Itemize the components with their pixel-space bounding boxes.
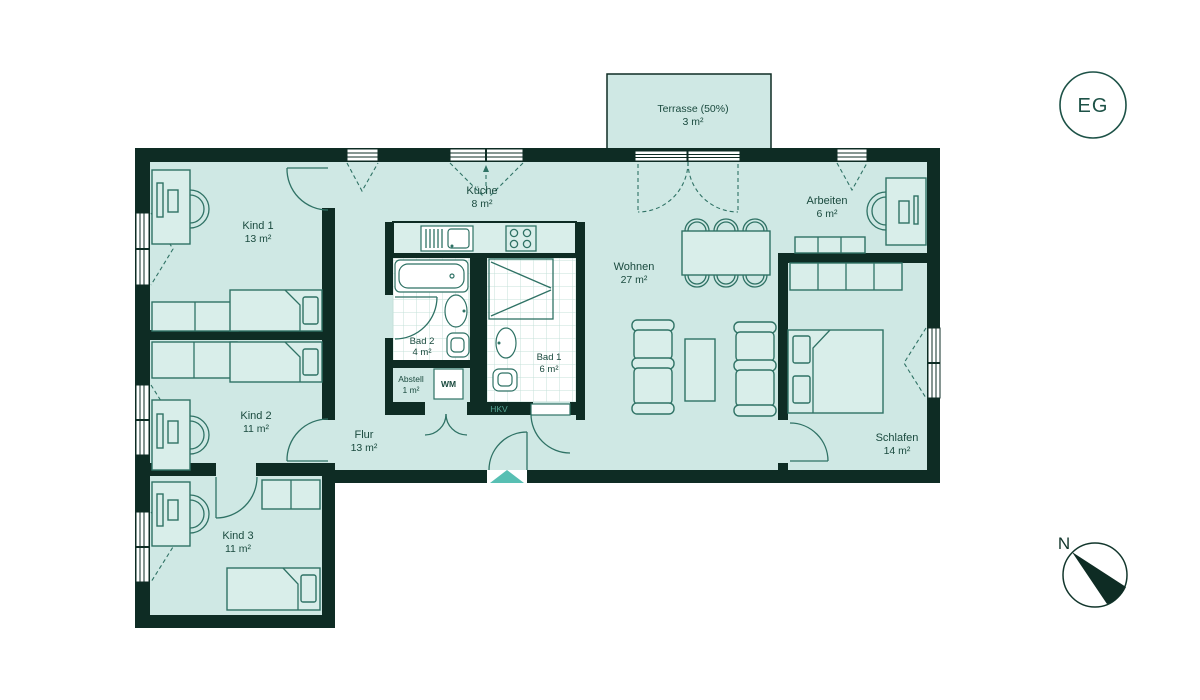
wall-wohnen-schlafen [778, 253, 788, 420]
label-hkv: HKV [490, 404, 508, 414]
badge-text: EG [1078, 95, 1109, 117]
wall-bad-left-a [385, 222, 393, 295]
dining-table [682, 231, 770, 275]
bad2-sink [445, 295, 467, 327]
kind1-dresser [152, 302, 238, 331]
label-flur-name: Flur [355, 429, 374, 441]
wall-top [135, 148, 940, 162]
label-arbeiten-name: Arbeiten [807, 195, 848, 207]
sofa-left [632, 320, 674, 414]
kitchen-stove [506, 226, 536, 251]
bad1-sink [496, 328, 516, 358]
wall-wohnen-schlafen-b [778, 463, 788, 470]
compass-needle [1072, 552, 1126, 604]
label-bad1-area: 6 m² [540, 364, 559, 375]
label-kind1-area: 13 m² [245, 233, 272, 245]
label-abstell-area: 1 m² [403, 385, 420, 395]
label-kind2-name: Kind 2 [240, 410, 271, 422]
kind2-bed [230, 342, 322, 382]
label-kind1-name: Kind 1 [242, 220, 273, 232]
kind1-bed [230, 290, 322, 331]
label-kind3-area: 11 m² [225, 543, 252, 555]
arbeiten-sideboard [795, 237, 865, 253]
label-wohnen-area: 27 m² [621, 274, 648, 286]
wall-bottom-b [527, 470, 940, 483]
label-schlafen-name: Schlafen [876, 432, 919, 444]
compass-n-label: N [1058, 534, 1070, 553]
label-flur-area: 13 m² [351, 442, 378, 454]
kitchen-sink [421, 226, 473, 251]
kind3-bed [227, 568, 320, 610]
wall-bad2-abstell [393, 360, 470, 368]
floorplan: Kind 1 13 m² Kind 2 11 m² Kind 3 11 m² K… [0, 0, 1200, 700]
label-abstell-name: Abstell [398, 374, 424, 384]
wall-kind-flur [322, 208, 335, 420]
label-bad2-area: 4 m² [413, 347, 432, 358]
bad1-toilet [493, 369, 517, 391]
label-wm: WM [441, 379, 456, 389]
bad2-toilet [447, 333, 469, 357]
wall-bad2-bad1 [470, 258, 487, 402]
wall-flur-kind3-b [256, 463, 322, 476]
kind3-dresser [262, 480, 320, 509]
floor-level-badge: EG [1060, 72, 1126, 138]
wall-kind3-right [322, 463, 335, 628]
label-kueche-name: Küche [466, 185, 497, 197]
bathtub [395, 260, 468, 292]
wall-bad-bottom-a [385, 402, 425, 415]
north-compass: N [1058, 534, 1127, 607]
label-wohnen-name: Wohnen [614, 261, 655, 273]
kind2-dresser [152, 342, 237, 378]
label-terrasse-name: Terrasse (50%) [657, 103, 728, 115]
wall-bottom-a [335, 470, 487, 483]
wall-kueche-wohnen [576, 222, 585, 420]
label-kind2-area: 11 m² [243, 423, 270, 435]
wall-bad-left-b [385, 338, 393, 402]
sofa-right [734, 322, 776, 416]
wall-right [927, 148, 940, 483]
label-kind3-name: Kind 3 [222, 530, 253, 542]
wall-kind3-bottom [135, 615, 335, 628]
label-kueche-area: 8 m² [472, 198, 494, 210]
label-arbeiten-area: 6 m² [817, 208, 839, 220]
label-bad1-name: Bad 1 [537, 352, 562, 363]
double-bed [788, 330, 883, 413]
coffee-table [685, 339, 715, 401]
wall-arbeiten-schlafen [788, 253, 927, 263]
wardrobe [790, 263, 902, 290]
kitchen-counter [393, 222, 576, 254]
shower [489, 259, 553, 319]
label-schlafen-area: 14 m² [884, 445, 911, 457]
label-terrasse-area: 3 m² [683, 116, 705, 128]
label-bad2-name: Bad 2 [410, 336, 435, 347]
